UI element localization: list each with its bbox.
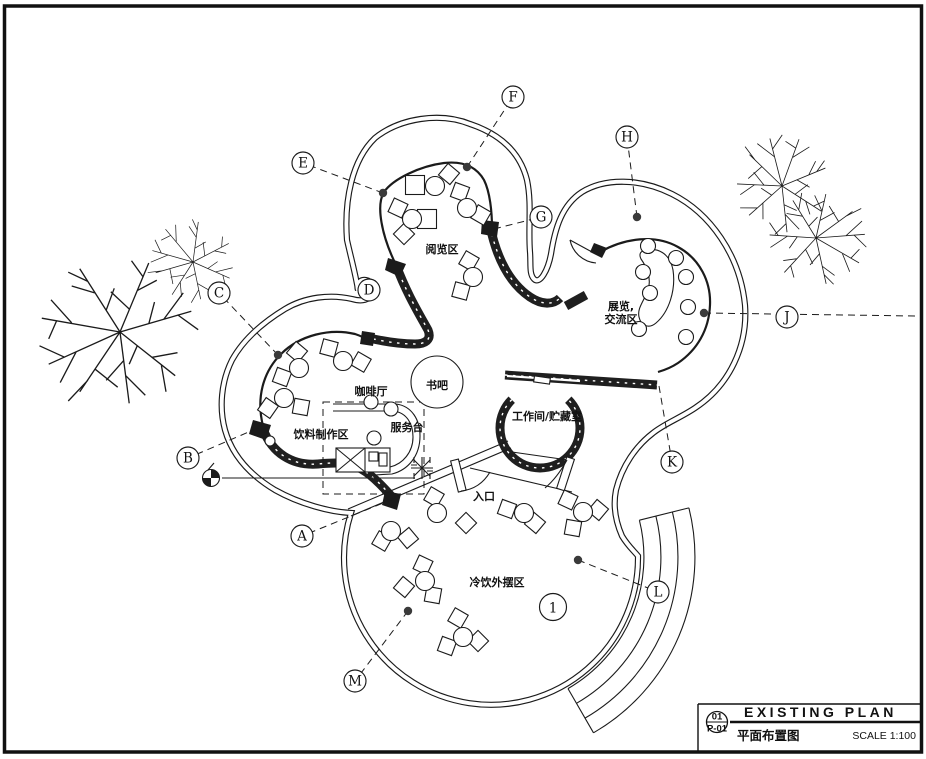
leader-H [627, 137, 637, 217]
grid-marker-F: F [502, 86, 524, 108]
drawing-title-zh: 平面布置图 [737, 728, 800, 743]
chair-symbol [292, 398, 309, 415]
zone-label-outdoor-seating: 冷饮外摆区 [470, 575, 525, 589]
leader-anchor-dot [700, 309, 708, 317]
grid-markers: ABCDEFGHJKLM1 [177, 86, 798, 692]
tree-icon [40, 261, 199, 404]
stool-symbol [384, 402, 398, 416]
exhibit-stand-symbol [641, 239, 656, 254]
zone-label-workroom-storage: 工作间/贮藏室 [512, 409, 582, 423]
exhibit-stand-symbol [636, 265, 651, 280]
existing-plan-drawing: ABCDEFGHJKLM1 阅览区展览,交流区咖啡厅书吧服务台饮料制作区工作间/… [0, 0, 926, 759]
zone-label-cafe: 咖啡厅 [355, 384, 388, 398]
leader-anchor-dot [404, 607, 412, 615]
grid-marker-label: K [667, 455, 678, 471]
grid-marker-B: B [177, 447, 199, 469]
exhibit-stand-symbol [679, 270, 694, 285]
leader-J [704, 313, 916, 316]
table-round-symbol [403, 210, 422, 229]
leader-anchor-dot [574, 556, 582, 564]
exhibition-door [570, 240, 596, 263]
chair-symbol [393, 576, 414, 597]
zone-label-book-bar: 书吧 [426, 378, 448, 392]
grid-marker-H: H [616, 126, 638, 148]
grid-marker-label: D [364, 283, 375, 299]
grid-marker-J: J [776, 306, 798, 328]
chair-symbol [272, 367, 291, 386]
leader-anchor-dot [379, 189, 387, 197]
table-round-symbol [382, 522, 401, 541]
tree-symbols [40, 129, 879, 404]
chair-symbol [448, 608, 468, 628]
grid-marker-label: J [782, 310, 789, 326]
leader-anchor-dot [274, 351, 282, 359]
chair-symbol [497, 499, 516, 518]
exhibit-stand-symbol [679, 330, 694, 345]
zone-label-reading-area: 阅览区 [426, 242, 459, 256]
grid-marker-C: C [208, 282, 230, 304]
section-symbol-icon [203, 463, 220, 487]
table-round-symbol [290, 359, 309, 378]
leader-E [303, 163, 383, 193]
table-round-symbol [275, 389, 294, 408]
exhibit-stand-symbol [681, 300, 696, 315]
floor-plan-sheet: ABCDEFGHJKLM1 阅览区展览,交流区咖啡厅书吧服务台饮料制作区工作间/… [0, 0, 926, 759]
grid-marker-label: E [298, 156, 308, 172]
stool-symbol [367, 431, 381, 445]
drawing-title-en: EXISTING PLAN [744, 704, 897, 720]
grid-marker-L: L [647, 581, 669, 603]
leader-C [219, 293, 278, 355]
exhibit-stand-symbol [643, 286, 658, 301]
table-round-symbol [426, 177, 445, 196]
grid-marker-A: A [291, 525, 313, 547]
leader-F [467, 97, 513, 167]
table-round-symbol [464, 268, 483, 287]
grid-marker-label: L [654, 585, 663, 601]
number-marker-1: 1 [540, 594, 567, 621]
drawing-scale: SCALE 1:100 [852, 730, 916, 742]
grid-marker-label: A [296, 529, 307, 545]
zone-label-beverage-prep: 饮料制作区 [293, 427, 349, 441]
chair-symbol [351, 352, 371, 372]
snowflake-icon [411, 457, 433, 479]
entrance-door-leaf [451, 459, 467, 492]
grid-marker-label: C [214, 286, 224, 302]
leader-anchor-dot [463, 163, 471, 171]
tree-icon [755, 179, 879, 297]
table-square-symbol [406, 176, 425, 195]
leader-anchor-dot [633, 213, 641, 221]
table-round-symbol [515, 504, 534, 523]
table-round-symbol [458, 199, 477, 218]
grid-marker-label: H [621, 130, 633, 146]
grid-marker-E: E [292, 152, 314, 174]
title-block: 01 P-01 EXISTING PLAN 平面布置图 SCALE 1:100 [698, 704, 921, 751]
table-round-symbol [416, 572, 435, 591]
grid-marker-K: K [661, 451, 683, 473]
grid-marker-G: G [530, 206, 552, 228]
chair-symbol [455, 512, 476, 533]
number-marker-label: 1 [549, 601, 558, 617]
exhibit-stand-symbol [669, 251, 684, 266]
zone-label-exhibition-area: 展览,交流区 [605, 299, 638, 326]
grid-marker-label: F [508, 90, 517, 106]
sheet-number: P-01 [707, 724, 728, 735]
table-round-symbol [454, 628, 473, 647]
grid-marker-label: G [536, 210, 547, 226]
grid-marker-M: M [344, 670, 366, 692]
grid-marker-label: M [348, 674, 362, 690]
tree-icon [135, 205, 250, 319]
detail-number: 01 [712, 712, 723, 723]
table-round-symbol [574, 503, 593, 522]
chair-symbol [564, 519, 581, 536]
grid-marker-label: B [183, 451, 193, 467]
equipment-counter [336, 448, 390, 472]
terrace-steps [568, 508, 695, 733]
grid-marker-D: D [358, 279, 380, 301]
leader-L [578, 560, 658, 592]
zone-label-entrance: 入口 [473, 490, 495, 503]
table-round-symbol [334, 352, 353, 371]
zone-label-service-desk: 服务台 [391, 420, 424, 434]
table-round-symbol [428, 504, 447, 523]
